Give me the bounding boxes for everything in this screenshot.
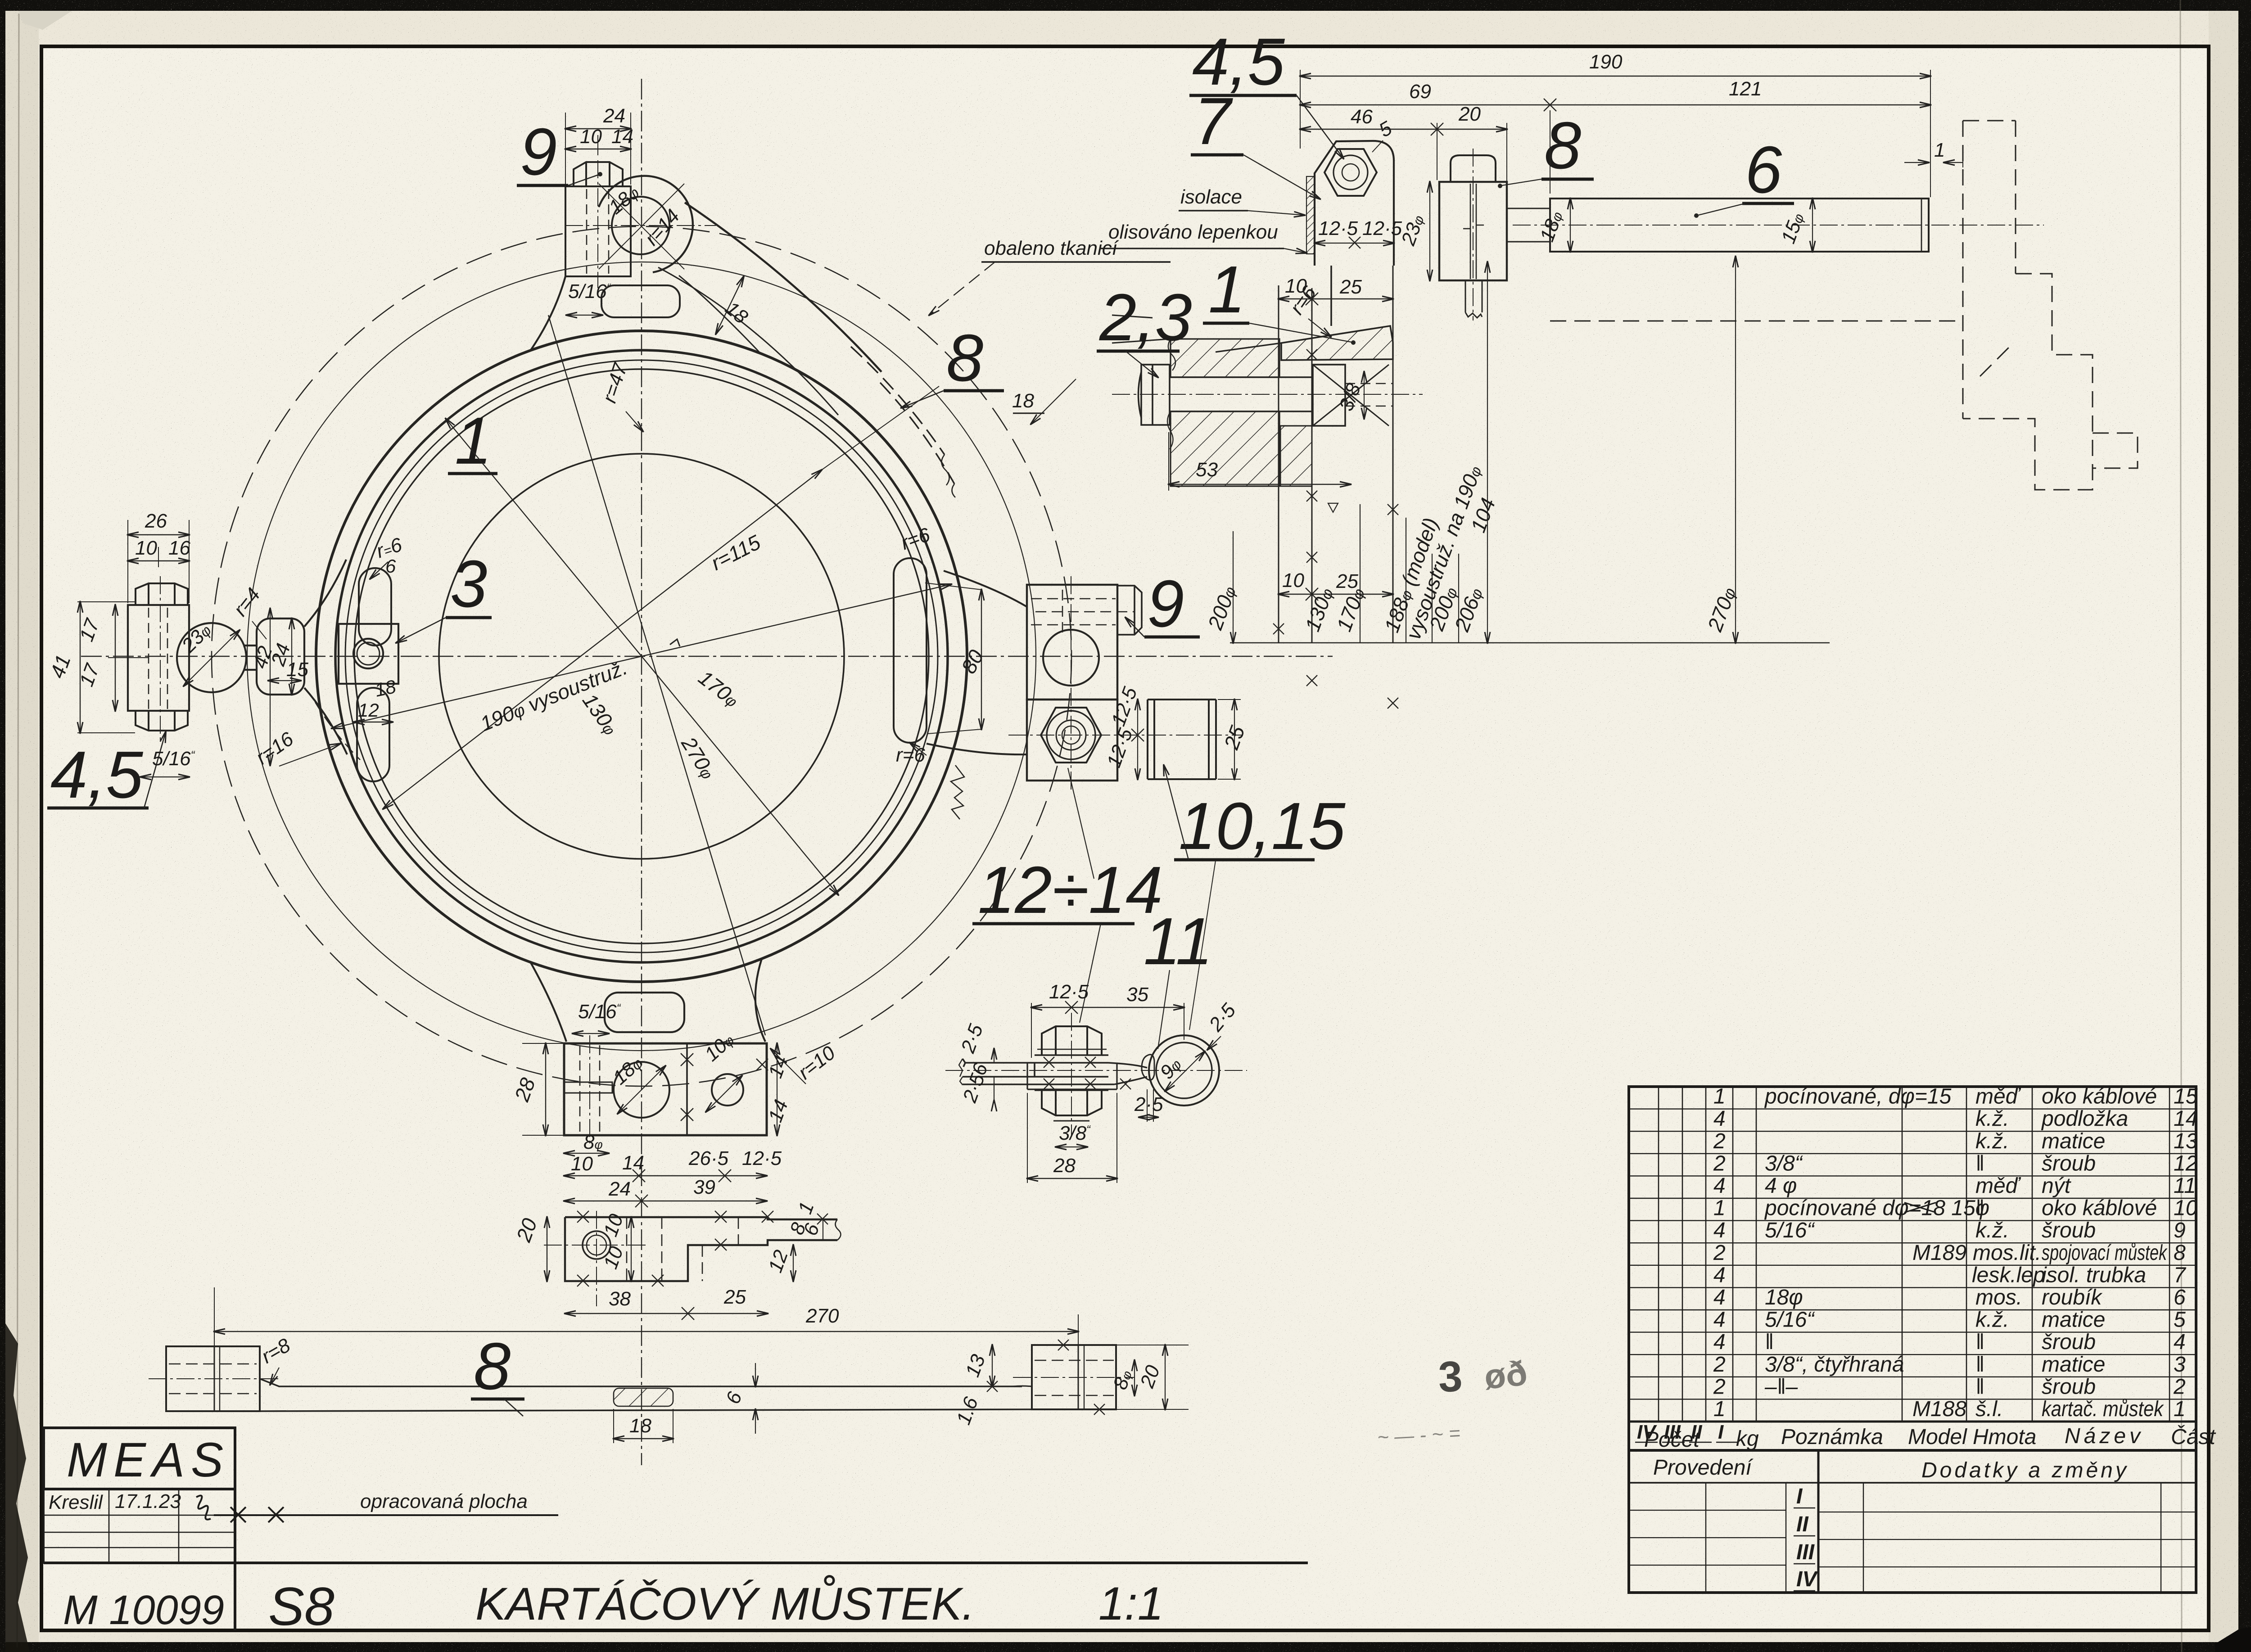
svg-text:KARTÁČOVÝ MŮSTEK.: KARTÁČOVÝ MŮSTEK. xyxy=(475,1575,975,1629)
svg-text:12: 12 xyxy=(358,700,379,721)
svg-text:28: 28 xyxy=(1053,1155,1076,1177)
svg-text:69: 69 xyxy=(1409,81,1431,103)
svg-text:12·5: 12·5 xyxy=(1362,217,1402,239)
svg-text:11: 11 xyxy=(2174,1174,2196,1198)
svg-text:10: 10 xyxy=(2174,1196,2198,1220)
svg-text:5/16“: 5/16“ xyxy=(568,280,611,302)
svg-text:12: 12 xyxy=(2174,1151,2197,1175)
svg-text:k.ž.: k.ž. xyxy=(1975,1219,2009,1242)
svg-text:24: 24 xyxy=(603,105,625,127)
svg-text:13: 13 xyxy=(2174,1129,2198,1153)
svg-text:38: 38 xyxy=(609,1288,631,1310)
svg-text:olisováno lepenkou: olisováno lepenkou xyxy=(1108,221,1278,243)
svg-text:S8: S8 xyxy=(268,1576,334,1637)
svg-text:5/16“: 5/16“ xyxy=(152,748,195,770)
svg-text:6: 6 xyxy=(2174,1286,2186,1309)
svg-text:11: 11 xyxy=(1144,904,1213,979)
svg-text:IV: IV xyxy=(1796,1567,1818,1591)
svg-text:6: 6 xyxy=(1745,133,1782,207)
svg-text:k.ž.: k.ž. xyxy=(1975,1107,2009,1131)
svg-text:15: 15 xyxy=(286,659,308,681)
svg-text:2: 2 xyxy=(1713,1151,1726,1175)
svg-text:2: 2 xyxy=(1713,1375,1726,1399)
svg-text:9: 9 xyxy=(1147,567,1184,641)
svg-text:‖: ‖ xyxy=(1975,1196,1984,1220)
svg-text:3/8“: 3/8“ xyxy=(1059,1122,1091,1144)
svg-text:‖: ‖ xyxy=(1975,1353,1984,1377)
svg-text:5/16“: 5/16“ xyxy=(1765,1219,1815,1242)
svg-text:Model: Model xyxy=(1908,1425,1967,1449)
svg-text:I: I xyxy=(1718,1421,1724,1443)
svg-text:2·5: 2·5 xyxy=(1134,1093,1163,1115)
svg-text:šroub: šroub xyxy=(2042,1151,2096,1175)
svg-text:opracovaná plocha: opracovaná plocha xyxy=(360,1490,528,1512)
svg-text:4: 4 xyxy=(1713,1107,1726,1131)
svg-text:Název: Název xyxy=(2065,1424,2144,1448)
svg-text:4: 4 xyxy=(1713,1330,1726,1354)
svg-text:podložka: podložka xyxy=(2041,1107,2128,1131)
svg-text:øð: øð xyxy=(1483,1353,1529,1396)
svg-text:‖: ‖ xyxy=(1765,1330,1774,1354)
svg-text:II: II xyxy=(1796,1512,1809,1536)
svg-text:3: 3 xyxy=(2174,1353,2186,1377)
svg-text:oko káblové: oko káblové xyxy=(2042,1196,2157,1220)
svg-text:Dodatky a změny: Dodatky a změny xyxy=(1921,1458,2129,1482)
svg-text:lesk.lep.: lesk.lep. xyxy=(1972,1263,2051,1287)
svg-text:Počet: Počet xyxy=(1644,1428,1700,1452)
svg-text:10: 10 xyxy=(135,537,157,559)
svg-text:8: 8 xyxy=(474,1329,511,1404)
svg-text:7: 7 xyxy=(2174,1263,2187,1287)
svg-text:15: 15 xyxy=(2174,1085,2198,1109)
svg-text:4: 4 xyxy=(1713,1263,1726,1287)
svg-text:matice: matice xyxy=(2042,1129,2105,1153)
svg-text:14: 14 xyxy=(2174,1107,2197,1131)
svg-text:kartač. můstek: kartač. můstek xyxy=(2042,1397,2165,1421)
svg-text:nýt: nýt xyxy=(2042,1174,2071,1198)
svg-text:190: 190 xyxy=(1589,51,1623,73)
svg-text:2: 2 xyxy=(2173,1375,2186,1399)
svg-text:pocínované, dφ=15: pocínované, dφ=15 xyxy=(1764,1085,1952,1109)
svg-text:8: 8 xyxy=(946,321,983,395)
svg-text:10,15: 10,15 xyxy=(1179,789,1346,863)
svg-text:oko káblové: oko káblové xyxy=(2042,1085,2157,1109)
svg-text:4: 4 xyxy=(1713,1219,1726,1242)
svg-text:M 10099: M 10099 xyxy=(63,1587,224,1633)
svg-text:k.ž.: k.ž. xyxy=(1975,1308,2009,1332)
svg-text:1: 1 xyxy=(1713,1085,1726,1109)
svg-text:1: 1 xyxy=(1208,253,1245,327)
svg-text:25: 25 xyxy=(1339,276,1362,298)
svg-text:17.1.23: 17.1.23 xyxy=(115,1490,181,1512)
svg-text:‖: ‖ xyxy=(1975,1330,1984,1354)
svg-text:1: 1 xyxy=(1934,139,1945,161)
svg-text:šroub: šroub xyxy=(2042,1330,2096,1354)
svg-text:10: 10 xyxy=(571,1153,593,1175)
svg-text:8: 8 xyxy=(2174,1241,2186,1265)
svg-text:Část: Část xyxy=(2171,1425,2216,1449)
svg-text:Provedení: Provedení xyxy=(1653,1456,1754,1480)
svg-text:270: 270 xyxy=(805,1305,839,1327)
svg-text:53: 53 xyxy=(1196,459,1218,481)
svg-text:18: 18 xyxy=(1012,390,1034,412)
svg-text:3: 3 xyxy=(1437,1352,1463,1401)
svg-text:12÷14: 12÷14 xyxy=(978,853,1162,927)
svg-text:4: 4 xyxy=(1713,1174,1726,1198)
svg-text:5: 5 xyxy=(2174,1308,2186,1332)
svg-text:šroub: šroub xyxy=(2042,1375,2096,1399)
svg-text:16: 16 xyxy=(168,537,190,559)
svg-text:9: 9 xyxy=(2174,1219,2186,1242)
svg-text:~ — - ~ =: ~ — - ~ = xyxy=(1377,1422,1461,1449)
svg-text:2: 2 xyxy=(1713,1241,1726,1265)
svg-text:121: 121 xyxy=(1729,78,1762,100)
svg-text:1: 1 xyxy=(2174,1397,2186,1421)
svg-text:9: 9 xyxy=(520,115,557,189)
svg-text:2: 2 xyxy=(1713,1129,1726,1153)
svg-text:3/8“: 3/8“ xyxy=(1765,1151,1804,1175)
svg-text:7: 7 xyxy=(1194,84,1233,158)
svg-text:k.ž.: k.ž. xyxy=(1975,1129,2009,1153)
svg-text:10: 10 xyxy=(580,126,602,148)
svg-text:12·5: 12·5 xyxy=(1318,217,1358,239)
svg-text:spojovací můstek: spojovací můstek xyxy=(2042,1241,2168,1265)
svg-text:26·5: 26·5 xyxy=(688,1147,729,1169)
svg-text:35: 35 xyxy=(1126,984,1148,1006)
svg-text:MEAS: MEAS xyxy=(67,1432,230,1487)
svg-text:šroub: šroub xyxy=(2042,1219,2096,1242)
svg-text:39: 39 xyxy=(693,1176,715,1198)
svg-text:4: 4 xyxy=(1713,1308,1726,1332)
svg-text:4 φ: 4 φ xyxy=(1765,1174,1797,1198)
svg-text:46: 46 xyxy=(1351,106,1373,128)
svg-text:M188: M188 xyxy=(1912,1397,1966,1421)
svg-text:mos.: mos. xyxy=(1975,1286,2022,1309)
svg-text:matice: matice xyxy=(2042,1353,2105,1377)
svg-text:Poznámka: Poznámka xyxy=(1781,1425,1883,1449)
svg-text:3/8“, čtyřhraná: 3/8“, čtyřhraná xyxy=(1765,1353,1904,1377)
svg-text:12·5: 12·5 xyxy=(742,1147,782,1169)
svg-text:5/16“: 5/16“ xyxy=(578,1001,621,1023)
svg-text:4: 4 xyxy=(1713,1286,1726,1309)
svg-text:4,5: 4,5 xyxy=(50,738,143,812)
svg-text:14: 14 xyxy=(611,126,633,148)
svg-text:roubík: roubík xyxy=(2042,1286,2103,1309)
svg-text:–‖–: –‖– xyxy=(1764,1375,1798,1399)
svg-text:2: 2 xyxy=(1713,1353,1726,1377)
svg-text:III: III xyxy=(1796,1540,1815,1564)
svg-text:3: 3 xyxy=(450,547,487,621)
svg-text:4: 4 xyxy=(2174,1330,2186,1354)
svg-text:26: 26 xyxy=(145,510,167,532)
svg-text:12·5: 12·5 xyxy=(1049,981,1089,1003)
svg-text:r=6: r=6 xyxy=(896,744,925,766)
svg-text:kg: kg xyxy=(1736,1427,1759,1451)
svg-text:18φ: 18φ xyxy=(1765,1286,1803,1309)
svg-text:10: 10 xyxy=(1285,275,1307,297)
svg-text:18: 18 xyxy=(629,1415,651,1437)
svg-text:25: 25 xyxy=(723,1286,746,1308)
svg-text:5/16“: 5/16“ xyxy=(1765,1308,1815,1332)
svg-text:I: I xyxy=(1796,1485,1803,1508)
svg-text:‖: ‖ xyxy=(1975,1151,1984,1175)
svg-text:isol. trubka: isol. trubka xyxy=(2042,1263,2146,1287)
svg-text:pocínované dφ=18 15φ: pocínované dφ=18 15φ xyxy=(1764,1196,1989,1220)
svg-text:1: 1 xyxy=(1713,1196,1726,1220)
svg-text:20: 20 xyxy=(1458,103,1481,125)
svg-text:1: 1 xyxy=(455,404,492,478)
svg-text:2,3: 2,3 xyxy=(1099,280,1192,355)
svg-text:isolace: isolace xyxy=(1180,186,1242,208)
svg-text:měď: měď xyxy=(1975,1085,2021,1109)
svg-text:Hmota: Hmota xyxy=(1973,1425,2036,1449)
svg-text:matice: matice xyxy=(2042,1308,2105,1332)
svg-text:‖: ‖ xyxy=(1975,1375,1984,1399)
svg-text:měď: měď xyxy=(1975,1174,2021,1198)
svg-text:24: 24 xyxy=(608,1178,631,1200)
svg-text:obaleno tkanicí: obaleno tkanicí xyxy=(984,237,1119,259)
svg-text:Kreslil: Kreslil xyxy=(49,1491,103,1513)
svg-text:mos.lit.: mos.lit. xyxy=(1973,1241,2041,1265)
svg-text:1: 1 xyxy=(1713,1397,1726,1421)
svg-text:1:1: 1:1 xyxy=(1098,1578,1164,1630)
svg-text:š.l.: š.l. xyxy=(1975,1397,2003,1421)
svg-text:10: 10 xyxy=(1282,569,1304,591)
svg-text:M189: M189 xyxy=(1912,1241,1966,1265)
